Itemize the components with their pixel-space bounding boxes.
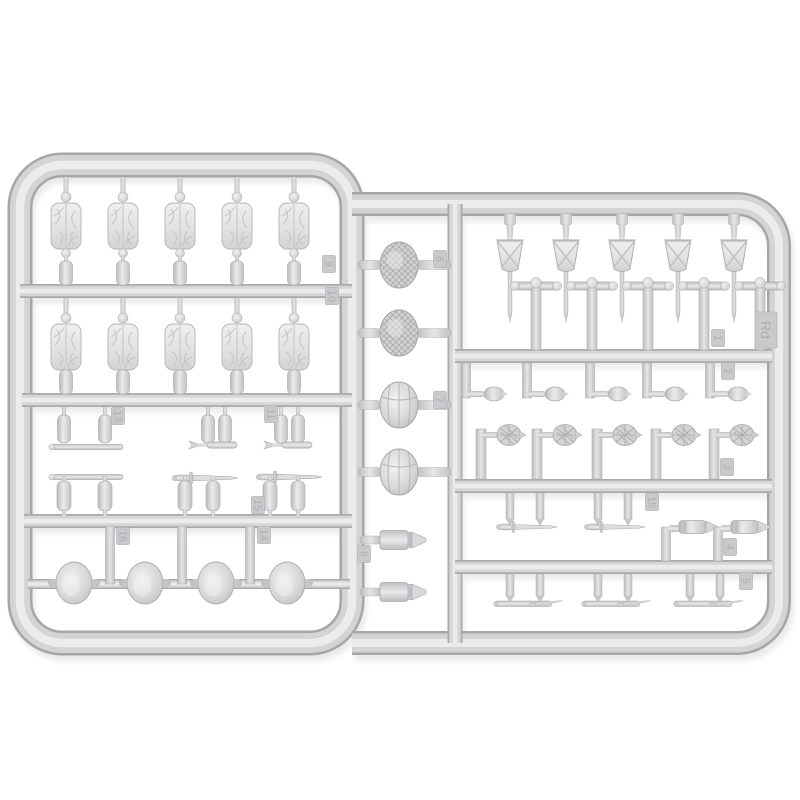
part-number-tag: 1 bbox=[711, 330, 724, 347]
water-bottle bbox=[57, 476, 71, 516]
shell-projectile bbox=[360, 583, 426, 602]
water-bottle bbox=[178, 476, 192, 516]
runner-post bbox=[246, 526, 255, 584]
part-number-tag: 13 bbox=[111, 408, 124, 425]
tag-label: 13 bbox=[111, 410, 123, 422]
sprue-photo: 9 10 13 11 15 16 14 6 7 8 1 bbox=[0, 0, 800, 800]
pineapple-grenades-row bbox=[476, 425, 759, 480]
egg-grenade bbox=[586, 363, 633, 401]
t-handle-grip bbox=[623, 278, 674, 351]
egg-grenades-row bbox=[462, 363, 753, 401]
tag-label: 16 bbox=[116, 530, 128, 542]
part-number-tag: 11 bbox=[264, 406, 277, 423]
part-number-tag: 5 bbox=[739, 573, 752, 590]
spade-in-cover bbox=[721, 214, 747, 324]
spade-in-cover bbox=[665, 214, 691, 324]
tarpaulin-packs-row1 bbox=[51, 177, 309, 285]
plain-helmet bbox=[48, 562, 100, 604]
sprue-code-tag: Rd bbox=[755, 312, 777, 348]
tarpaulin-pack bbox=[165, 177, 195, 258]
tarpaulin-pack bbox=[108, 177, 138, 258]
tag-label: 4 bbox=[723, 544, 735, 550]
tarpaulin-pack bbox=[222, 177, 252, 258]
tag-label: 5 bbox=[739, 578, 751, 584]
water-bottle bbox=[291, 476, 305, 516]
part-number-tag: 9 bbox=[322, 256, 335, 273]
water-bottle bbox=[263, 476, 277, 516]
water-bottle bbox=[206, 476, 220, 516]
part-number-tag: 4 bbox=[723, 539, 736, 556]
spade-covers-row bbox=[497, 214, 786, 350]
knives-and-bottles-row bbox=[49, 471, 322, 516]
sprue-code-label: Rd bbox=[758, 321, 774, 339]
plain-helmet bbox=[190, 562, 242, 604]
entrenching-shovel bbox=[189, 441, 237, 449]
connector-bottle bbox=[174, 256, 187, 285]
tag-label: 14 bbox=[257, 529, 269, 541]
pineapple-grenade bbox=[592, 425, 642, 480]
connector-bottle bbox=[231, 256, 244, 285]
part-number-tag: 15 bbox=[251, 497, 264, 514]
tag-label: 7 bbox=[433, 397, 445, 403]
part-number-tag: 6 bbox=[433, 251, 446, 268]
connector-bottle bbox=[60, 256, 73, 285]
egg-grenade bbox=[462, 363, 509, 401]
part-number-tag: 10 bbox=[325, 288, 338, 305]
connector-bottle bbox=[288, 256, 301, 285]
helmet-chain-row bbox=[48, 526, 313, 604]
tag-label: 11 bbox=[264, 409, 276, 420]
egg-grenade bbox=[523, 363, 570, 401]
tag-label: 3 bbox=[720, 464, 732, 470]
pineapple-grenade bbox=[651, 425, 701, 480]
bayonet bbox=[584, 493, 645, 533]
tag-label: 2 bbox=[721, 368, 733, 374]
part-number-tag: 14 bbox=[257, 527, 270, 544]
tarpaulin-packs-row2 bbox=[51, 298, 309, 394]
runner-post bbox=[106, 526, 115, 584]
tag-label: 9 bbox=[322, 261, 334, 267]
part-number-tag: 7 bbox=[433, 392, 446, 409]
tag-label: 15 bbox=[645, 496, 657, 508]
bayonet bbox=[496, 493, 557, 533]
part-number-tag: 2 bbox=[721, 363, 734, 380]
part-number-tag: 3 bbox=[720, 459, 733, 476]
ridged-helmet bbox=[358, 449, 451, 495]
part-number-tag: 8 bbox=[357, 546, 370, 563]
runner-post bbox=[178, 526, 187, 584]
tag-label: 8 bbox=[357, 551, 369, 557]
water-bottle bbox=[98, 476, 112, 516]
pineapple-grenade bbox=[709, 425, 759, 480]
tarpaulin-pack bbox=[51, 177, 81, 258]
rifle-grenade bbox=[662, 521, 719, 562]
pineapple-grenade bbox=[532, 425, 582, 480]
cleaning-rod bbox=[49, 474, 123, 480]
cleaning-rod bbox=[49, 444, 123, 450]
plain-helmet bbox=[261, 562, 313, 604]
tag-label: 10 bbox=[325, 290, 337, 302]
connector-bottle bbox=[117, 256, 130, 285]
spade-in-cover bbox=[609, 214, 635, 324]
tag-label: 1 bbox=[711, 335, 723, 341]
middle-column bbox=[358, 242, 451, 602]
spade-in-cover bbox=[497, 214, 523, 324]
part-number-tag: 16 bbox=[116, 528, 129, 545]
tarpaulin-pack bbox=[279, 177, 309, 258]
helmet-with-net bbox=[358, 310, 451, 356]
rifle-grenade bbox=[714, 521, 771, 562]
entrenching-shovel bbox=[264, 441, 312, 449]
tag-label: 6 bbox=[433, 256, 445, 262]
spade-in-cover bbox=[553, 214, 579, 324]
part-number-tag: 15 bbox=[645, 494, 658, 511]
pineapple-grenade bbox=[476, 425, 526, 480]
egg-grenade bbox=[643, 363, 690, 401]
fighting-knife bbox=[256, 471, 322, 483]
t-handle-grip bbox=[567, 278, 618, 351]
t-handle-grip bbox=[511, 278, 562, 351]
tag-label: 15 bbox=[251, 499, 263, 511]
plain-helmet bbox=[119, 562, 171, 604]
